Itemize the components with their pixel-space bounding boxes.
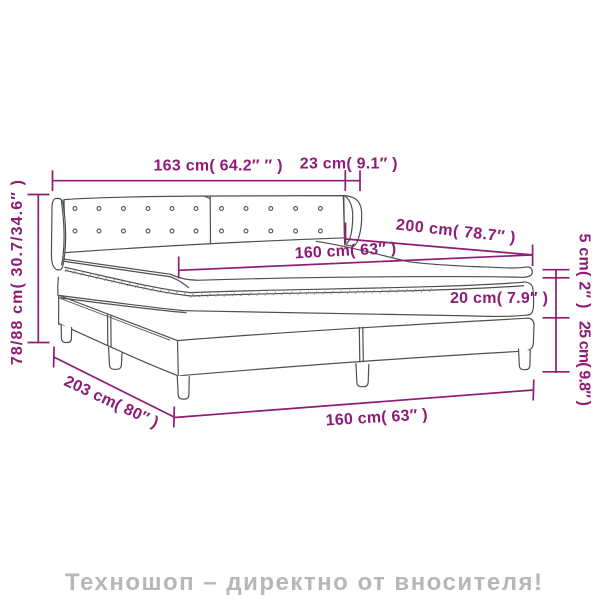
svg-text:5 cm( 2″ ): 5 cm( 2″ ) — [576, 234, 593, 309]
svg-text:23 cm( 9.1″ ): 23 cm( 9.1″ ) — [300, 155, 398, 172]
svg-text:Техношоп – директно от вносите: Техношоп – директно от вносителя! — [65, 569, 542, 596]
svg-text:25 cm( 9.8″ ): 25 cm( 9.8″ ) — [576, 321, 593, 406]
svg-text:20 cm( 7.9″ ): 20 cm( 7.9″ ) — [450, 290, 548, 307]
svg-text:78/88 cm( 30.7/34.6″ ): 78/88 cm( 30.7/34.6″ ) — [9, 180, 26, 365]
svg-text:163 cm( 64.2″ ″ ): 163 cm( 64.2″ ″ ) — [154, 158, 283, 175]
